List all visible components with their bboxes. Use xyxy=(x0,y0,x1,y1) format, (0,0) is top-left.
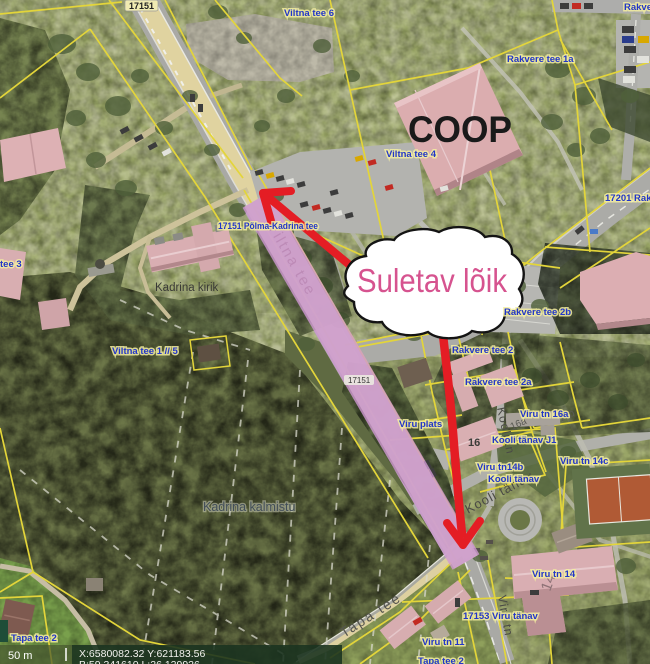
svg-text:Viru tn14b: Viru tn14b xyxy=(477,462,523,473)
svg-text:Viltna tee 6: Viltna tee 6 xyxy=(284,8,334,19)
svg-text:B:59.341610 L:26.129926: B:59.341610 L:26.129926 xyxy=(79,659,200,664)
svg-text:Viltna tee 4: Viltna tee 4 xyxy=(386,149,437,160)
svg-text:Rakvere tee 2b: Rakvere tee 2b xyxy=(504,307,571,318)
svg-text:Tapa tee 2: Tapa tee 2 xyxy=(11,633,57,644)
svg-text:17153 Viru tänav: 17153 Viru tänav xyxy=(463,611,539,622)
svg-text:Rakvere: Rakvere xyxy=(624,2,650,13)
svg-text:Kooli tänav J1: Kooli tänav J1 xyxy=(492,435,557,446)
svg-text:Rakvere tee 2: Rakvere tee 2 xyxy=(452,345,513,356)
svg-text:COOP: COOP xyxy=(408,109,512,150)
svg-text:17151: 17151 xyxy=(129,1,154,11)
svg-text:Viru tn 11: Viru tn 11 xyxy=(422,637,465,648)
svg-text:tee 3: tee 3 xyxy=(0,259,22,270)
svg-text:Suletav lõik: Suletav lõik xyxy=(357,262,507,299)
svg-text:Kadrina kalmistu: Kadrina kalmistu xyxy=(203,500,295,514)
svg-text:17201 Rakv: 17201 Rakv xyxy=(605,193,650,204)
svg-text:Viltna tee 1 // 5: Viltna tee 1 // 5 xyxy=(112,346,179,357)
svg-text:Viru tn 14c: Viru tn 14c xyxy=(560,456,608,467)
svg-text:Viru plats: Viru plats xyxy=(399,419,442,430)
svg-text:Kooli tänav: Kooli tänav xyxy=(488,474,540,485)
svg-text:17151: 17151 xyxy=(348,376,371,385)
svg-text:Kadrina kirik: Kadrina kirik xyxy=(155,282,219,294)
svg-text:16: 16 xyxy=(468,437,480,449)
svg-text:Tapa tee 2: Tapa tee 2 xyxy=(418,656,464,664)
svg-text:17151 Põlma-Kadrina tee: 17151 Põlma-Kadrina tee xyxy=(218,221,318,232)
svg-text:Rakvere tee 2a: Rakvere tee 2a xyxy=(465,377,532,388)
svg-text:Rakvere tee 1a: Rakvere tee 1a xyxy=(507,54,574,65)
svg-text:Viru tn 14: Viru tn 14 xyxy=(532,569,576,580)
svg-text:Viru tn 16a: Viru tn 16a xyxy=(520,409,569,420)
svg-text:50 m: 50 m xyxy=(8,650,32,662)
